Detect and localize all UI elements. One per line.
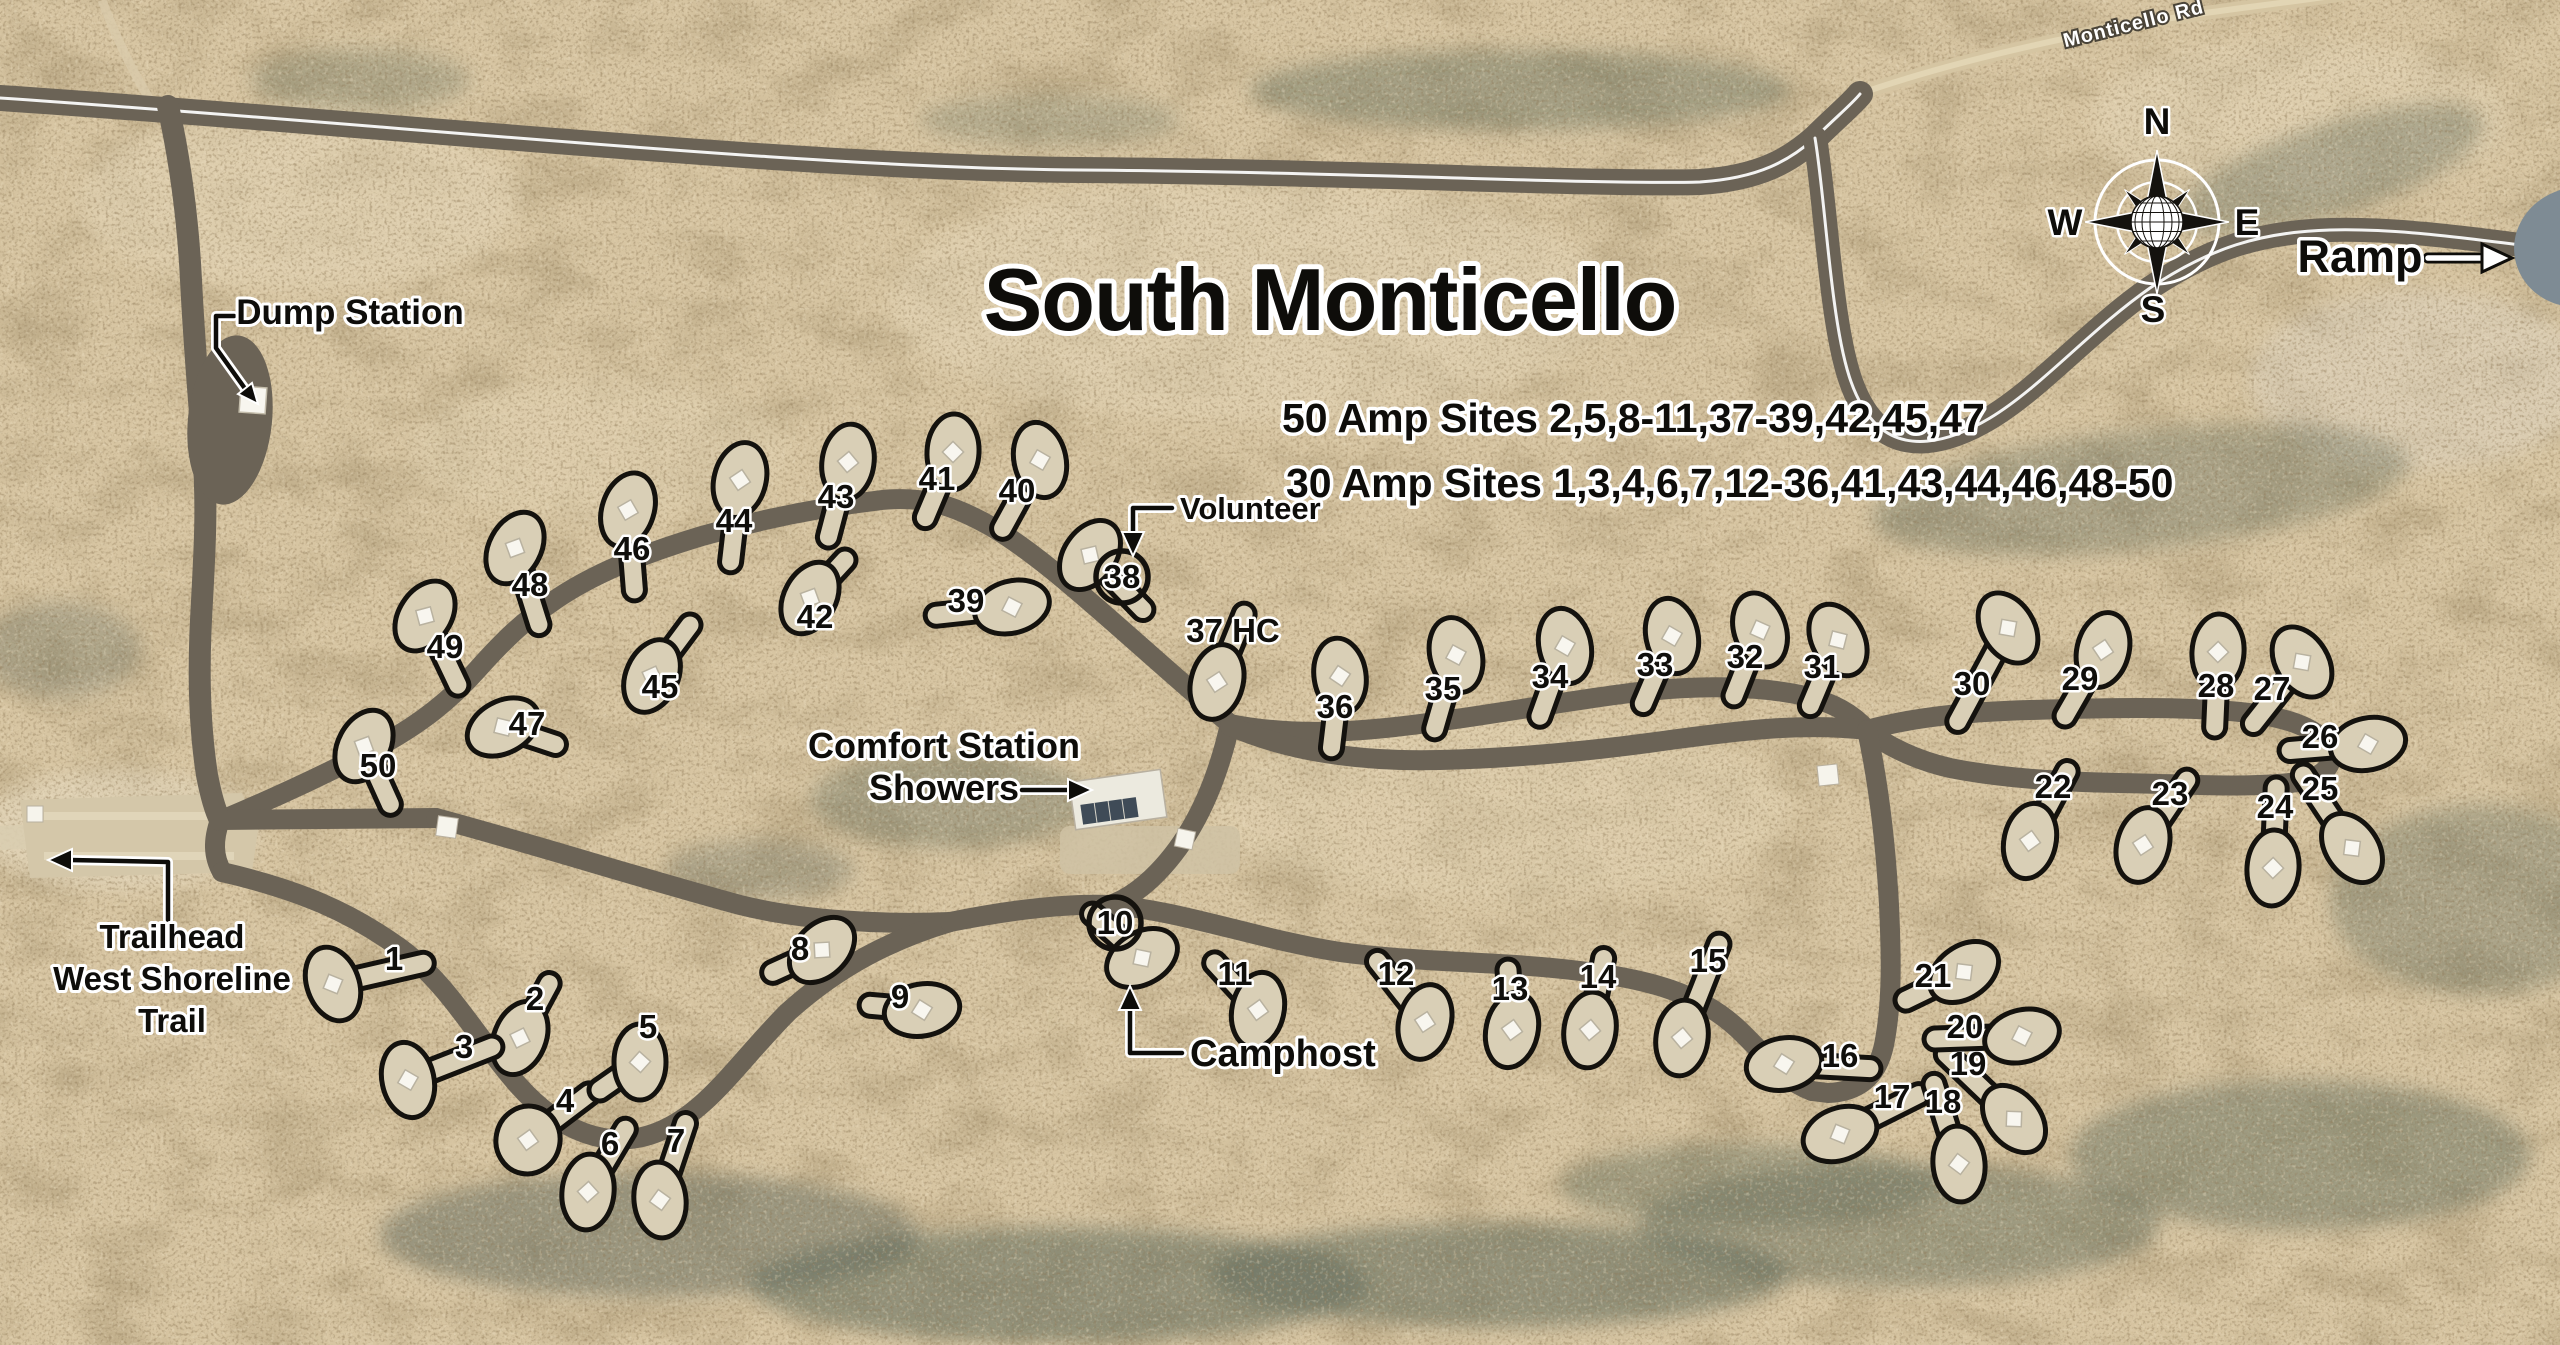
site-number: 27 xyxy=(2254,670,2291,707)
trailhead-building xyxy=(27,806,43,822)
site-number: 22 xyxy=(2035,768,2072,805)
site-number: 23 xyxy=(2152,775,2189,812)
site-number: 20 xyxy=(1947,1008,1984,1045)
camphost-label: Camphost xyxy=(1190,1033,1376,1075)
site-number: 2 xyxy=(526,980,544,1017)
compass-south-label: S xyxy=(2141,289,2166,330)
site-number: 34 xyxy=(1532,658,1569,695)
trailhead-label-line2: West Shoreline xyxy=(53,960,291,997)
site-number: 31 xyxy=(1804,648,1841,685)
comfort-station-label-line1: Comfort Station xyxy=(808,725,1080,766)
site-shelter xyxy=(2344,840,2361,857)
site-shelter xyxy=(1999,619,2016,636)
site-number: 24 xyxy=(2257,788,2294,825)
site-number: 39 xyxy=(948,582,985,619)
site-shelter xyxy=(2006,1111,2022,1127)
comfort-station-label-line2: Showers xyxy=(869,767,1019,808)
vault-toilet-east xyxy=(1817,764,1839,786)
entrance-upper-road xyxy=(220,818,436,820)
site-number: 21 xyxy=(1915,957,1952,994)
dump-station-label: Dump Station xyxy=(236,293,463,332)
site-shelter xyxy=(416,607,434,625)
site-number: 28 xyxy=(2198,667,2235,704)
site-number: 41 xyxy=(919,460,956,497)
map-canvas: 1234567891011121314151617181920212223242… xyxy=(0,0,2560,1345)
site-shelter xyxy=(1956,964,1973,981)
site-number: 10 xyxy=(1097,904,1134,941)
trailhead-label-line3: Trail xyxy=(138,1002,206,1039)
site-number: 46 xyxy=(614,530,651,567)
campground-title: South Monticello xyxy=(984,250,1677,349)
site-number: 44 xyxy=(716,502,753,539)
site-number: 45 xyxy=(642,668,679,705)
site-number: 32 xyxy=(1727,638,1764,675)
site-number: 17 xyxy=(1874,1078,1911,1115)
site-number: 3 xyxy=(455,1028,473,1065)
site-number: 42 xyxy=(797,598,834,635)
vault-toilet-west xyxy=(436,816,459,839)
compass-east-label: E xyxy=(2235,202,2260,243)
site-number: 43 xyxy=(818,478,855,515)
site-number: 13 xyxy=(1492,970,1529,1007)
site-number: 37 HC xyxy=(1186,612,1280,649)
site-number: 16 xyxy=(1822,1037,1859,1074)
site-number: 47 xyxy=(509,705,546,742)
campground-map-screenshot: 1234567891011121314151617181920212223242… xyxy=(0,0,2560,1345)
compass-west-label: W xyxy=(2048,202,2083,243)
site-shelter xyxy=(1081,546,1099,564)
volunteer-label: Volunteer xyxy=(1180,491,1321,526)
site-number: 29 xyxy=(2062,660,2099,697)
site-number: 14 xyxy=(1580,958,1617,995)
site-number: 9 xyxy=(891,978,909,1015)
site-shelter xyxy=(814,942,830,958)
site-number: 26 xyxy=(2302,718,2339,755)
site-number: 40 xyxy=(999,472,1036,509)
site-number: 15 xyxy=(1690,942,1727,979)
site-number: 7 xyxy=(667,1122,685,1159)
site-number: 35 xyxy=(1425,670,1462,707)
site-number: 8 xyxy=(791,930,809,967)
site-shelter xyxy=(2293,653,2310,670)
site-number: 25 xyxy=(2302,770,2339,807)
site-number: 50 xyxy=(360,747,397,784)
site-number: 36 xyxy=(1317,688,1354,725)
site-shelter xyxy=(1829,631,1847,649)
site-number: 49 xyxy=(427,628,464,665)
site-number: 5 xyxy=(639,1008,657,1045)
trailhead-label-line1: Trailhead xyxy=(100,918,245,955)
site-number: 30 xyxy=(1954,665,1991,702)
compass-globe xyxy=(2131,196,2183,248)
site-number: 48 xyxy=(512,566,549,603)
compass-north-label: N xyxy=(2144,101,2171,142)
amp-sites-30-label: 30 Amp Sites 1,3,4,6,7,12-36,41,43,44,46… xyxy=(1286,460,2173,506)
site-number: 11 xyxy=(1218,955,1253,992)
site-number: 6 xyxy=(601,1125,619,1162)
amp-sites-50-label: 50 Amp Sites 2,5,8-11,37-39,42,45,47 xyxy=(1282,395,1985,441)
site-number: 1 xyxy=(385,940,403,977)
site-shelter xyxy=(1133,949,1151,967)
site-number: 4 xyxy=(556,1082,575,1119)
ramp-label: Ramp xyxy=(2297,231,2422,282)
comfort-station-outbuilding xyxy=(1174,828,1195,849)
site-number: 12 xyxy=(1378,955,1415,992)
site-number: 33 xyxy=(1637,646,1674,683)
site-number: 38 xyxy=(1104,558,1141,595)
site-number: 18 xyxy=(1925,1083,1962,1120)
